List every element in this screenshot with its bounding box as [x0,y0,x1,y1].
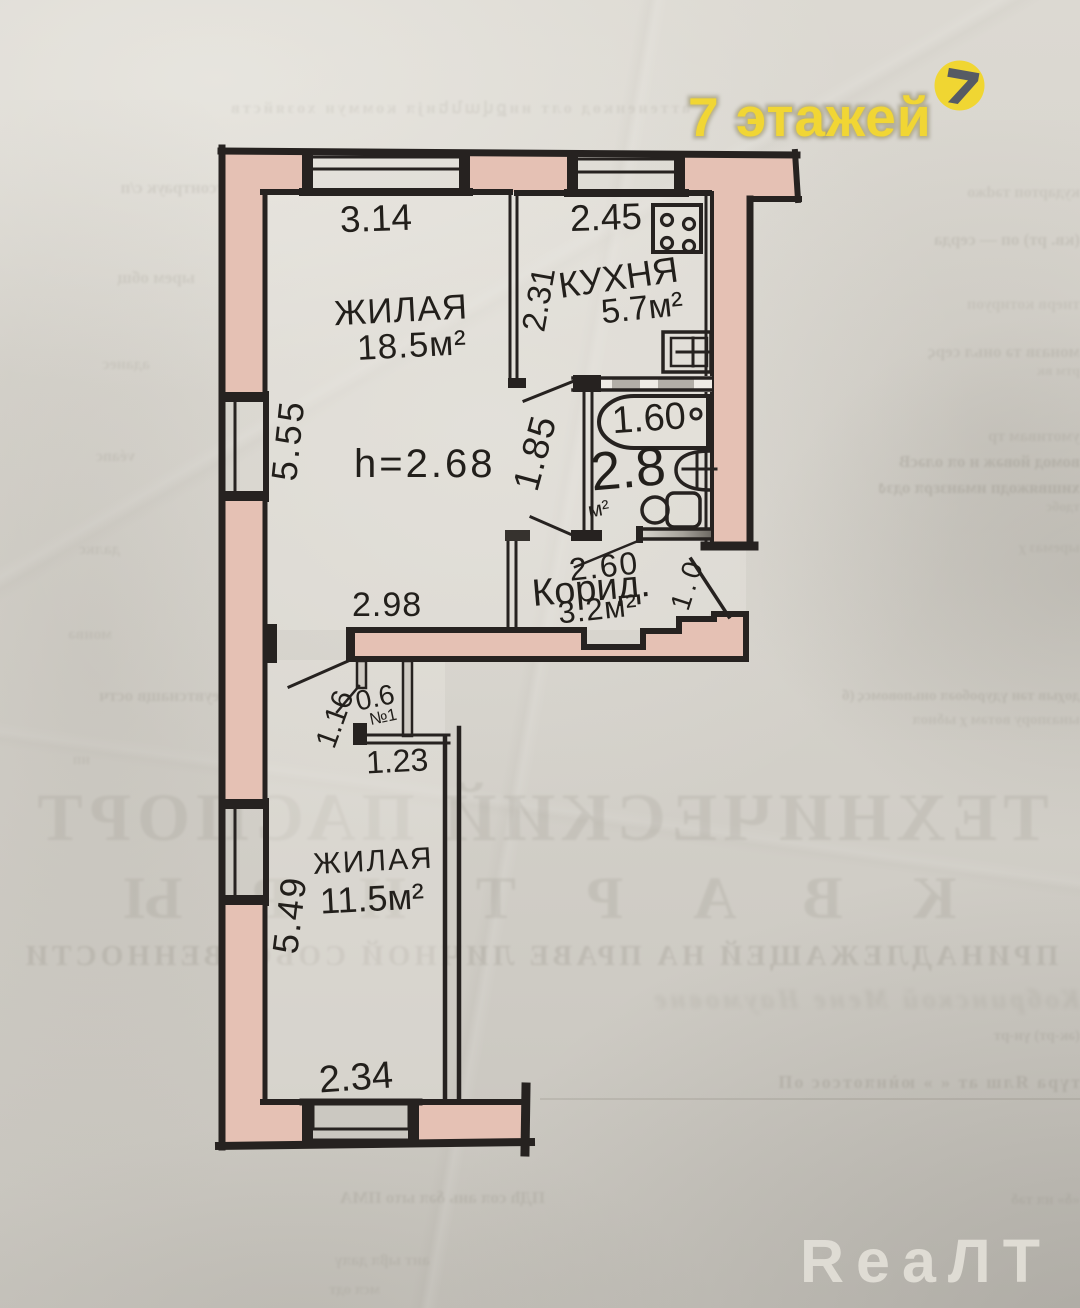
svg-text:1.23: 1.23 [365,741,429,780]
svg-text:2.8: 2.8 [588,436,668,502]
svg-text:м²: м² [586,496,611,522]
svg-text:2.45: 2.45 [569,196,642,239]
svg-text:1.60: 1.60 [611,395,688,442]
svg-text:2.60: 2.60 [567,545,641,588]
svg-text:18.5м²: 18.5м² [356,323,468,368]
svg-text:3.14: 3.14 [339,197,412,240]
svg-text:2.34: 2.34 [318,1054,395,1101]
svg-text:h=2.68: h=2.68 [354,442,495,486]
svg-text:11.5м²: 11.5м² [319,875,425,921]
svg-text:2.98: 2.98 [352,586,422,624]
svg-text:5.55: 5.55 [263,397,312,483]
